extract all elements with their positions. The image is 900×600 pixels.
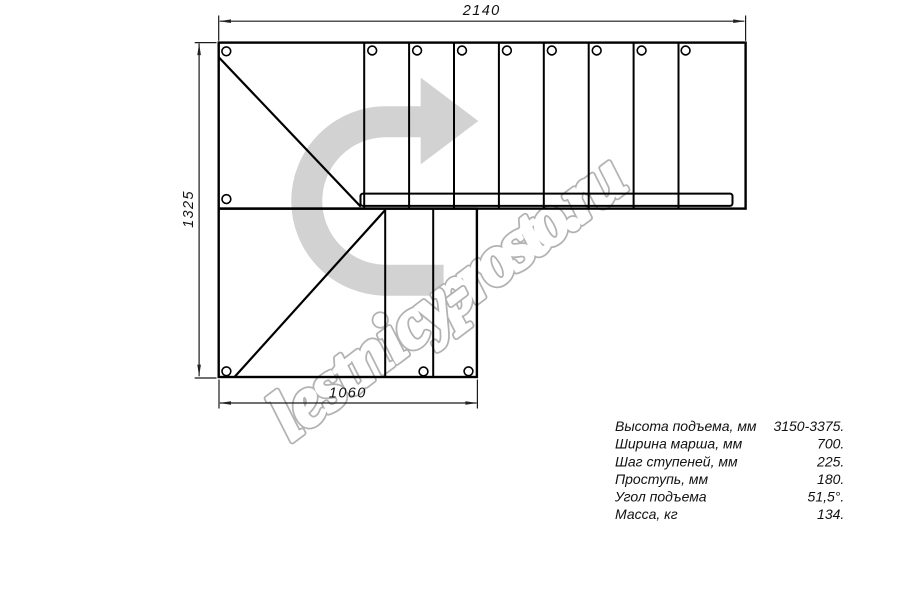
svg-text:3150-3375.: 3150-3375.: [773, 418, 844, 434]
svg-text:225.: 225.: [816, 454, 844, 470]
svg-text:700.: 700.: [817, 436, 844, 452]
svg-text:Высота подъема, мм: Высота подъема, мм: [615, 418, 757, 434]
svg-text:Угол подъема: Угол подъема: [614, 489, 707, 505]
svg-text:51,5°.: 51,5°.: [808, 489, 845, 505]
svg-text:180.: 180.: [817, 471, 844, 487]
svg-text:2140: 2140: [462, 3, 501, 19]
svg-text:Ширина марша, мм: Ширина марша, мм: [615, 436, 743, 452]
svg-text:Проступь, мм: Проступь, мм: [615, 471, 709, 487]
svg-text:Шаг ступеней, мм: Шаг ступеней, мм: [615, 454, 738, 470]
svg-text:1060: 1060: [329, 386, 367, 402]
svg-text:1325: 1325: [181, 190, 197, 228]
svg-text:134.: 134.: [817, 506, 844, 522]
svg-text:Масса, кг: Масса, кг: [615, 506, 678, 522]
